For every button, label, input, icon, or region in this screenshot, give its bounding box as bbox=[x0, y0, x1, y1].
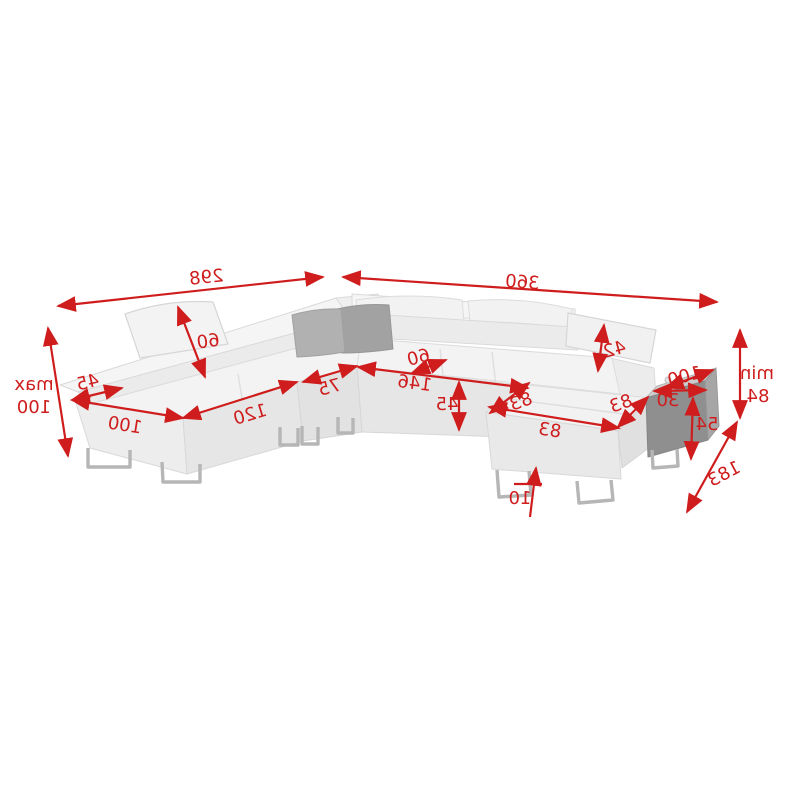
dim-298-label: 298 bbox=[188, 265, 224, 289]
leg bbox=[577, 480, 613, 503]
dim-54-label: 54 bbox=[696, 414, 719, 435]
dim-max-label: max bbox=[14, 374, 54, 395]
dim-10-label: 10 bbox=[509, 488, 532, 509]
dim-min-value: 84 bbox=[747, 386, 770, 407]
corner-pillow-left bbox=[292, 309, 345, 357]
dim-45-seat-label: 45 bbox=[436, 394, 459, 415]
dim-max-value: 100 bbox=[17, 397, 51, 418]
dim-30-label: 30 bbox=[657, 390, 680, 411]
dim-360-label: 360 bbox=[505, 271, 541, 294]
sofa-dimension-diagram: 298 360 max 100 45 100 60 120 75 60 146 … bbox=[0, 0, 800, 800]
dim-60-back-label: 60 bbox=[195, 330, 221, 354]
dim-83-front-label: 83 bbox=[537, 418, 563, 442]
diagram-canvas: 298 360 max 100 45 100 60 120 75 60 146 … bbox=[0, 0, 800, 800]
corner-pillow-right bbox=[337, 305, 393, 354]
dim-min-label: min bbox=[740, 363, 774, 384]
dim-146-label: 146 bbox=[396, 371, 433, 396]
dim-183-label: 183 bbox=[704, 457, 744, 492]
